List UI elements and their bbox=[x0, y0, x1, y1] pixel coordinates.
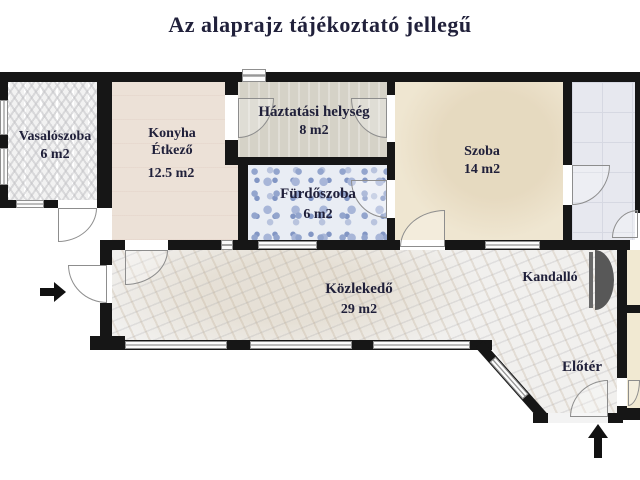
room-area-haztartasi: 8 m2 bbox=[299, 123, 328, 139]
door-opening-haztartasi-left bbox=[225, 95, 238, 140]
door-opening-furdo bbox=[387, 180, 395, 218]
floor-plan: Az alaprajz tájékoztató jellegű bbox=[0, 0, 640, 480]
room-label-furdoszoba: Fürdőszoba bbox=[280, 186, 356, 203]
wall-grayroom-right bbox=[635, 72, 640, 213]
window-left-wall-1 bbox=[0, 100, 8, 135]
entrance-arrow-up-head-icon bbox=[588, 424, 608, 438]
window-kozlekedo-2 bbox=[250, 341, 352, 349]
window-top-wall bbox=[242, 69, 266, 82]
wall-haztartasi-bottom bbox=[225, 157, 395, 165]
room-label-konyha-line1: Konyha bbox=[148, 126, 195, 142]
plan-disclaimer-title: Az alaprajz tájékoztató jellegű bbox=[168, 12, 471, 38]
window-furdo-bottom bbox=[258, 241, 317, 249]
door-opening-konyha bbox=[125, 240, 168, 250]
window-szoba-bottom bbox=[485, 241, 540, 249]
window-kozlekedo-1 bbox=[125, 341, 227, 349]
window-kozlekedo-3 bbox=[373, 341, 470, 349]
room-label-kozlekedo: Közlekedő bbox=[325, 281, 393, 298]
room-label-szoba: Szoba bbox=[464, 144, 500, 160]
window-vasalo-bottom bbox=[16, 200, 44, 208]
room-area-konyha: 12.5 m2 bbox=[148, 166, 195, 182]
window-left-wall-2 bbox=[0, 148, 8, 185]
wall-szoba-right bbox=[563, 72, 572, 240]
door-opening-haztartasi-right bbox=[387, 95, 395, 142]
room-label-haztartasi: Háztatási helység bbox=[258, 104, 369, 121]
wall-vasalo-konyha bbox=[97, 72, 112, 208]
entrance-arrow-up-icon bbox=[594, 438, 602, 458]
fireplace-icon bbox=[589, 252, 593, 308]
door-arc-vasalo bbox=[58, 208, 97, 242]
door-opening-side-strip bbox=[617, 378, 627, 406]
room-label-kandallo: Kandalló bbox=[522, 270, 577, 286]
room-label-eloter: Előtér bbox=[562, 359, 602, 376]
room-label-vasaloszoba: Vasalószoba bbox=[19, 129, 92, 145]
room-floor-konyha bbox=[112, 82, 238, 240]
entrance-arrow-right-head-icon bbox=[54, 282, 66, 302]
wall-bottom-right bbox=[623, 408, 640, 420]
room-area-szoba: 14 m2 bbox=[464, 162, 500, 178]
wall-left bbox=[0, 72, 8, 208]
wall-top-rooms-bottom bbox=[112, 240, 630, 250]
door-opening-szoba-grayroom bbox=[563, 165, 572, 205]
door-opening-vasalo bbox=[58, 200, 97, 208]
window-konyha-bottom bbox=[221, 240, 233, 250]
room-area-kozlekedo: 29 m2 bbox=[341, 302, 377, 318]
wall-top bbox=[0, 72, 640, 82]
entrance-arrow-right-icon bbox=[40, 288, 54, 296]
room-area-vasaloszoba: 6 m2 bbox=[40, 147, 69, 163]
door-arc-entrance-side bbox=[68, 265, 107, 303]
room-label-konyha-line2: Étkező bbox=[151, 143, 192, 159]
wall-side-strip-stub bbox=[627, 305, 640, 313]
room-area-furdoszoba: 6 m2 bbox=[303, 207, 332, 223]
wall-furdo-left bbox=[238, 165, 248, 240]
